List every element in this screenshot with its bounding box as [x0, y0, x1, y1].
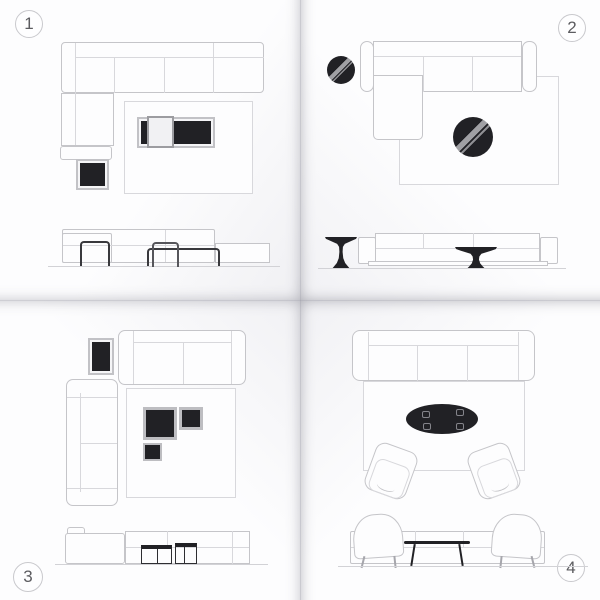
sofa-seat-divider — [81, 443, 117, 444]
sofa-cushion-line — [473, 233, 474, 248]
sofa-arm-line — [368, 332, 369, 380]
sofa-arm-right — [522, 41, 537, 92]
panel-4-badge: 4 — [557, 554, 585, 582]
round-side-table — [327, 56, 355, 84]
framed-cube-table-small — [175, 543, 197, 564]
pedestal-side-table — [325, 237, 357, 268]
sofa-cushion-line — [423, 233, 424, 248]
panel-1-badge: 1 — [15, 10, 43, 38]
sectional-sofa-vertical — [61, 93, 114, 146]
furniture-layouts-sheet: 1 2 — [0, 0, 600, 600]
panel-4: 4 — [300, 300, 600, 600]
sofa-back-line — [369, 345, 518, 346]
sofa-back-line — [76, 57, 264, 58]
panel-2: 2 — [300, 0, 600, 300]
framed-cube-table-large — [141, 545, 172, 564]
sofa-elevation-arm-right — [540, 237, 558, 264]
nesting-table-small — [143, 443, 162, 461]
sofa-arm-left — [360, 41, 374, 92]
sofa-seat-divider — [213, 43, 214, 93]
panel-1: 1 — [0, 0, 300, 300]
cube-table-divider — [157, 549, 158, 563]
ground-line — [318, 268, 566, 269]
panel-2-badge: 2 — [558, 14, 586, 42]
cube-table-divider — [184, 547, 185, 563]
panel-3-number: 3 — [23, 567, 32, 587]
armchair-elevation-right — [491, 512, 544, 559]
wireframe-nesting-table — [152, 242, 179, 267]
sofa-arm-line — [67, 488, 117, 489]
ground-line — [338, 566, 588, 567]
sofa-seat-divider — [467, 345, 468, 381]
panel-3-badge: 3 — [13, 562, 43, 592]
leg-glide-mark — [456, 409, 464, 416]
rectangular-side-table — [90, 340, 112, 373]
sofa-arm-line — [75, 43, 76, 145]
round-coffee-table — [453, 117, 493, 157]
sectional-sofa-horizontal — [61, 42, 264, 93]
sofa-seat-divider — [423, 56, 424, 92]
nesting-table-large — [143, 407, 177, 440]
panel-3: 3 — [0, 300, 300, 600]
three-seat-sofa — [352, 330, 535, 381]
sofa-elevation-arm-left — [358, 237, 376, 264]
armchair-seat — [366, 457, 411, 501]
sofa-elevation-chaise — [215, 243, 270, 263]
sofa-back-line — [133, 342, 231, 343]
leg-glide-mark — [422, 411, 430, 418]
sofa-seat-divider — [183, 342, 184, 384]
oval-coffee-table — [406, 404, 478, 434]
sofa-cushion-line — [463, 531, 464, 547]
sofa-seat-divider — [164, 57, 165, 93]
sofa-arm-line — [67, 397, 117, 398]
sofa-seat-divider — [417, 345, 418, 381]
sectional-sofa-ottoman — [60, 146, 112, 160]
sofa-arm-line — [518, 332, 519, 380]
sofa-chaise — [373, 75, 423, 140]
sofa-plinth — [368, 261, 548, 266]
panel-1-number: 1 — [24, 14, 33, 34]
sofa-seat-divider — [472, 56, 473, 92]
rug — [124, 101, 253, 194]
cube-side-table — [78, 161, 107, 188]
armchair-seat — [475, 456, 520, 500]
sofa-back-line — [374, 56, 521, 57]
leg-glide-mark — [423, 423, 431, 430]
wireframe-side-table — [80, 241, 110, 266]
sofa-seat-divider — [114, 57, 115, 93]
armchair-elevation-left — [352, 512, 405, 559]
leg-glide-mark — [456, 423, 464, 430]
nesting-table-medium — [179, 407, 203, 430]
two-seat-sofa-top — [118, 330, 246, 385]
ground-line — [55, 564, 268, 565]
panel-4-number: 4 — [566, 558, 575, 578]
sofa-arm-line — [133, 331, 134, 384]
panel-2-number: 2 — [567, 18, 576, 38]
sofa-arm-line — [231, 331, 232, 384]
page-seam-horizontal — [0, 300, 600, 301]
coffee-table-light-top — [147, 116, 174, 148]
sofa-elevation-end — [65, 533, 125, 564]
